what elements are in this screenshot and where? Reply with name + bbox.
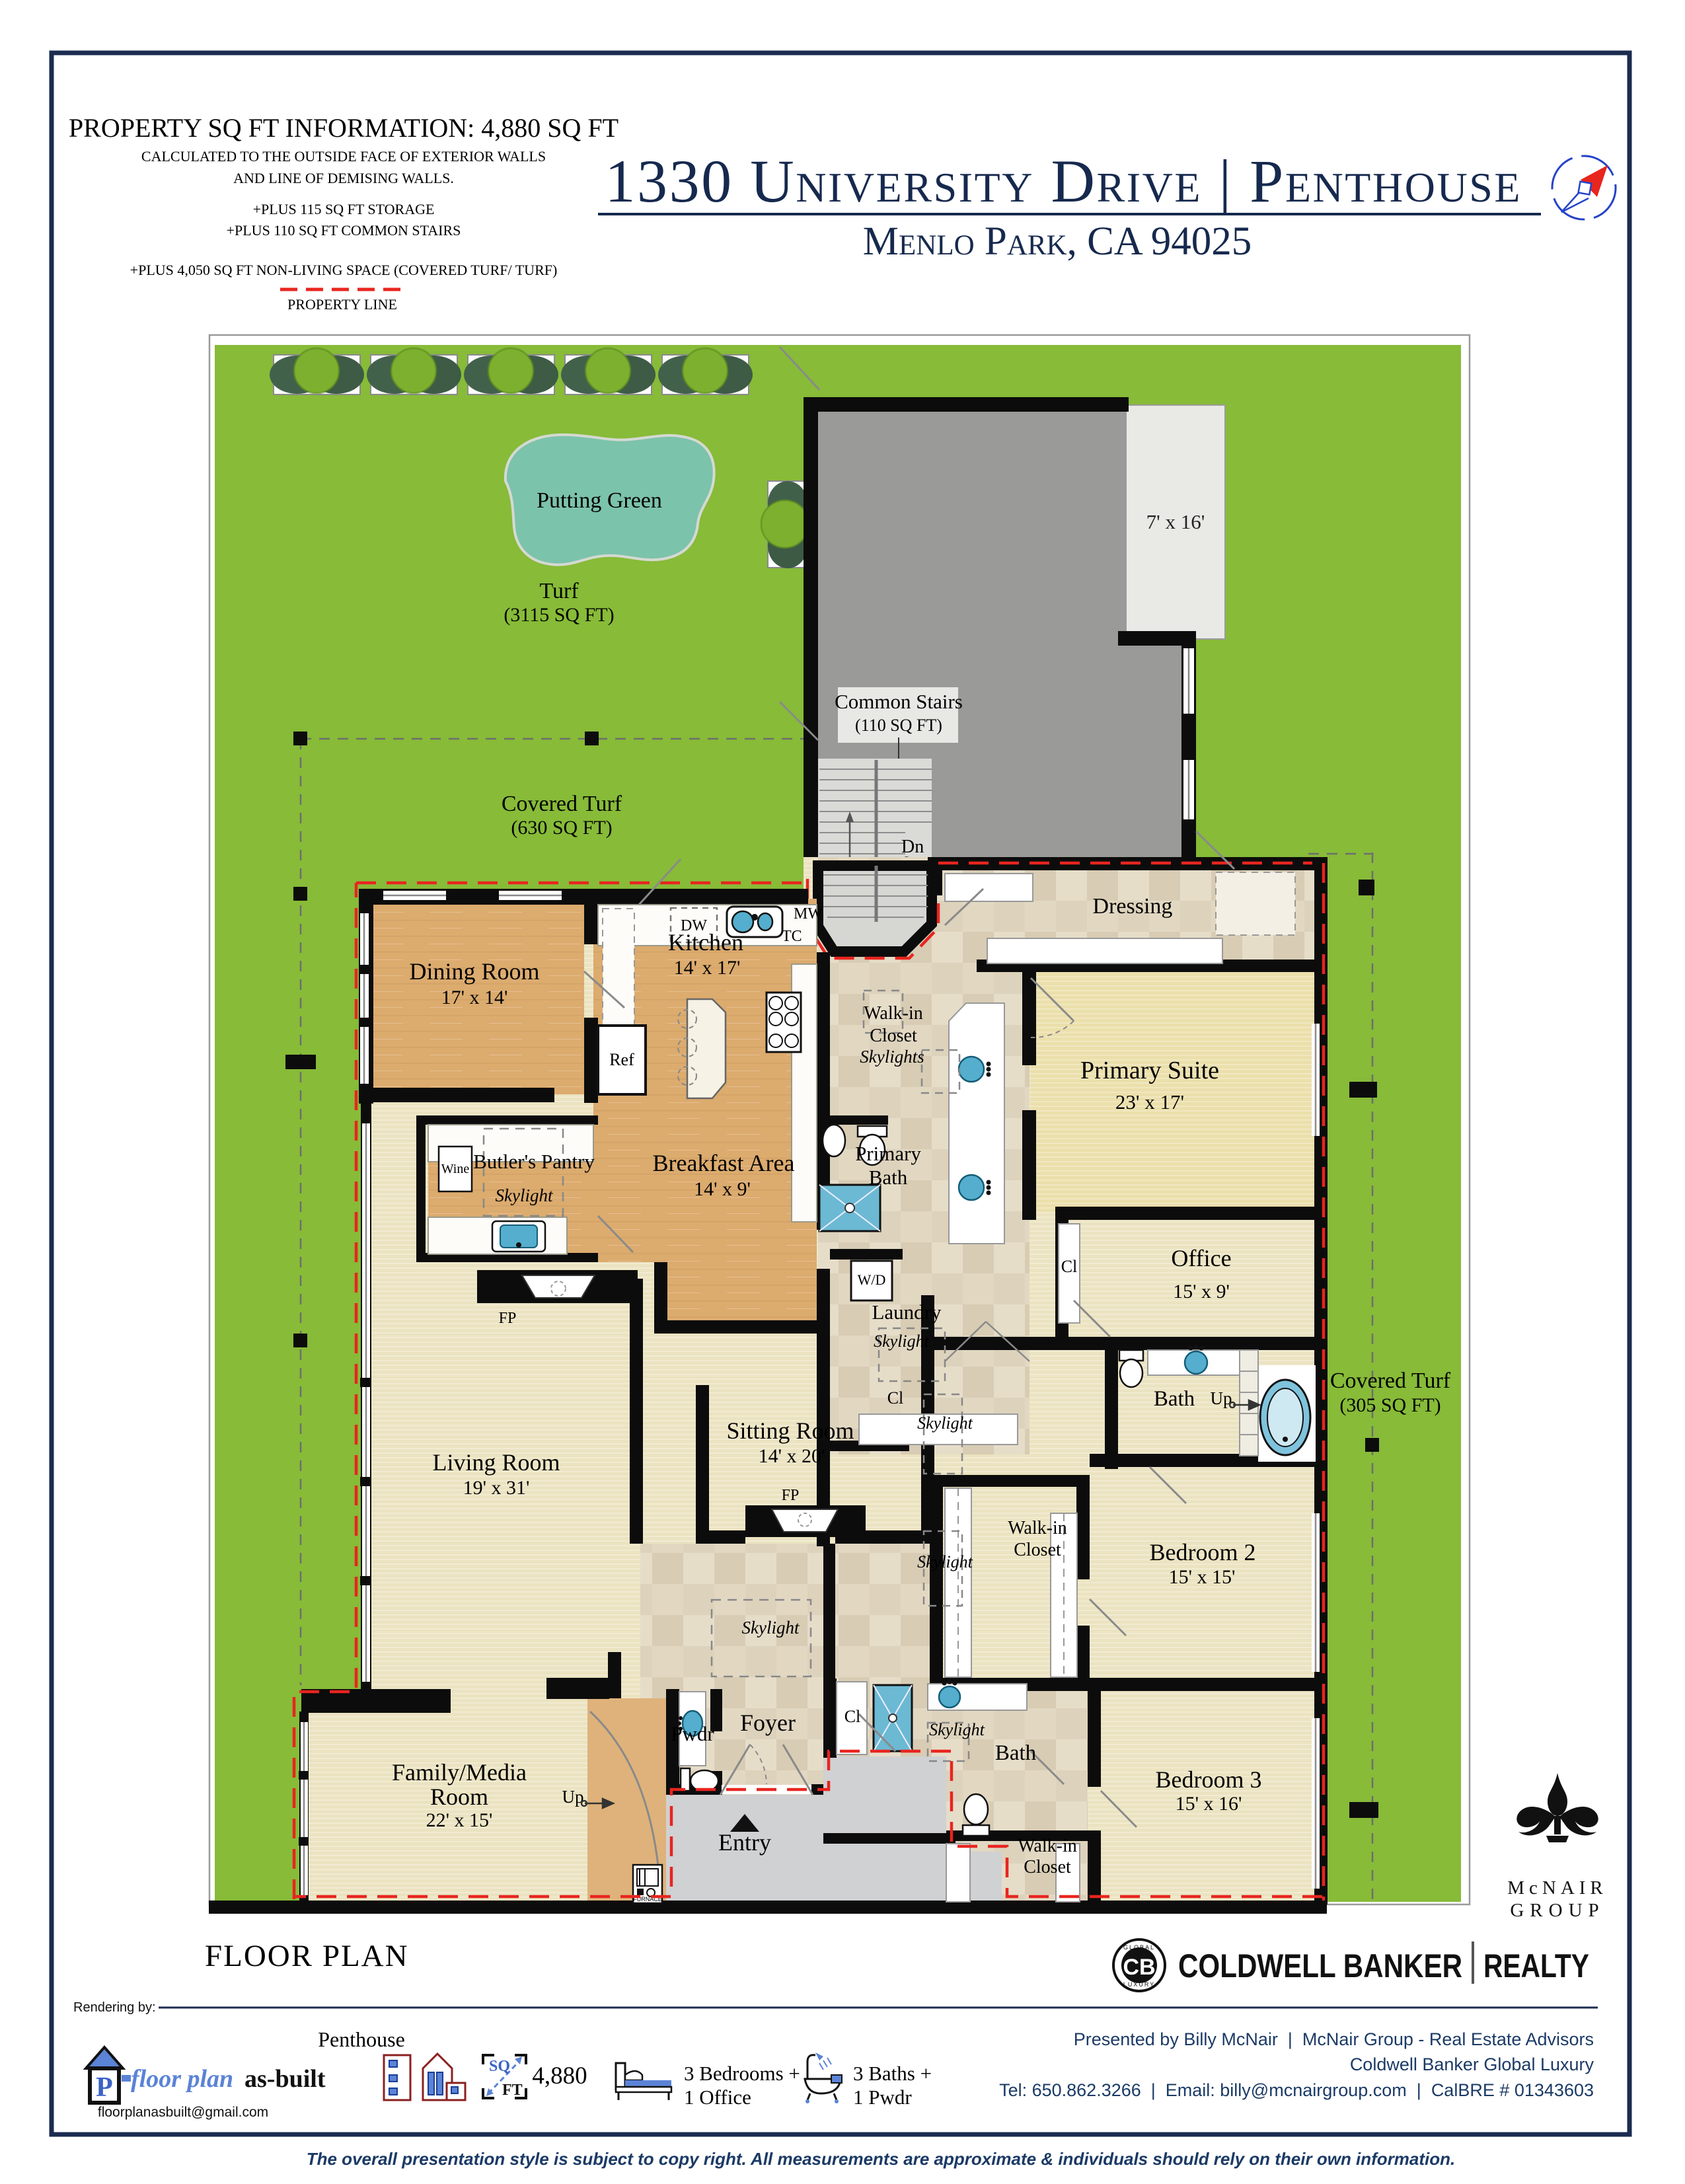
svg-text:Walk-in: Walk-in: [1018, 1836, 1077, 1856]
svg-text:Breakfast Area: Breakfast Area: [653, 1150, 795, 1176]
svg-text:Skylights: Skylights: [860, 1047, 924, 1067]
svg-text:Common Stairs: Common Stairs: [835, 690, 963, 713]
svg-text:Covered Turf: Covered Turf: [502, 792, 622, 816]
svg-text:3 Bedrooms +: 3 Bedrooms +: [684, 2062, 800, 2085]
svg-text:Cl: Cl: [844, 1707, 861, 1726]
svg-text:GROUP: GROUP: [1510, 1900, 1604, 1921]
svg-text:17' x 14': 17' x 14': [441, 987, 508, 1008]
svg-text:floor plan: floor plan: [131, 2065, 233, 2093]
svg-text:Foyer: Foyer: [740, 1710, 796, 1736]
svg-text:Skylight: Skylight: [917, 1552, 973, 1571]
svg-text:Office: Office: [1171, 1245, 1231, 1271]
svg-text:Walk-in: Walk-in: [864, 1003, 923, 1024]
svg-text:1 Pwdr: 1 Pwdr: [853, 2086, 912, 2109]
svg-text:Kitchen: Kitchen: [668, 929, 743, 956]
svg-text:Laundry: Laundry: [872, 1300, 942, 1324]
svg-text:Tel: 650.862.3266 | Email: b: Tel: 650.862.3266 | Email: billy@mcnairg…: [999, 2080, 1594, 2100]
svg-text:Penthouse: Penthouse: [318, 2027, 405, 2051]
svg-text:Primary Suite: Primary Suite: [1080, 1057, 1219, 1084]
svg-text:Sitting Room: Sitting Room: [726, 1417, 854, 1444]
svg-text:Pwdr: Pwdr: [671, 1722, 714, 1745]
svg-text:Rendering by:: Rendering by:: [73, 2000, 156, 2015]
svg-text:Skylight: Skylight: [917, 1413, 973, 1433]
svg-text:PROPERTY SQ FT INFORMATION: 4,: PROPERTY SQ FT INFORMATION: 4,880 SQ FT: [69, 113, 618, 143]
svg-text:PROPERTY LINE: PROPERTY LINE: [287, 296, 397, 313]
svg-text:7' x 16': 7' x 16': [1146, 510, 1205, 533]
svg-text:15' x 9': 15' x 9': [1173, 1281, 1230, 1302]
svg-text:Room: Room: [430, 1784, 488, 1810]
svg-text:Dn: Dn: [901, 837, 924, 857]
svg-text:4,880: 4,880: [532, 2062, 587, 2090]
svg-text:AND LINE OF DEMISING WALLS.: AND LINE OF DEMISING WALLS.: [233, 170, 454, 186]
svg-text:Skylight: Skylight: [742, 1618, 800, 1638]
svg-text:14' x 20': 14' x 20': [759, 1445, 825, 1467]
svg-text:Turf: Turf: [539, 579, 579, 603]
svg-text:Cl: Cl: [887, 1388, 904, 1408]
svg-text:+PLUS 115 SQ FT STORAGE: +PLUS 115 SQ FT STORAGE: [253, 201, 435, 217]
svg-text:TC: TC: [782, 928, 802, 945]
svg-text:(3115 SQ FT): (3115 SQ FT): [504, 604, 614, 626]
svg-text:CALCULATED TO THE OUTSIDE FACE: CALCULATED TO THE OUTSIDE FACE OF EXTERI…: [141, 148, 546, 165]
svg-text:(630 SQ FT): (630 SQ FT): [511, 817, 612, 839]
svg-text:Ref: Ref: [609, 1050, 634, 1069]
svg-text:Bedroom 3: Bedroom 3: [1156, 1766, 1262, 1793]
svg-text:CB: CB: [1123, 1955, 1155, 1980]
svg-text:Primary: Primary: [855, 1142, 921, 1165]
svg-text:Dressing: Dressing: [1093, 894, 1173, 919]
svg-text:15' x 15': 15' x 15': [1169, 1566, 1236, 1588]
svg-text:Closet: Closet: [1024, 1857, 1071, 1877]
svg-text:Covered Turf: Covered Turf: [1330, 1369, 1451, 1393]
svg-text:Coldwell Banker Global Luxury: Coldwell Banker Global Luxury: [1350, 2054, 1594, 2074]
svg-text:22' x 15': 22' x 15': [426, 1809, 493, 1831]
svg-text:Skylight: Skylight: [874, 1332, 930, 1351]
svg-text:1330 University Drive | Pentho: 1330 University Drive | Penthouse: [605, 147, 1520, 215]
svg-text:14' x 9': 14' x 9': [694, 1178, 751, 1200]
svg-text:23' x 17': 23' x 17': [1115, 1090, 1184, 1113]
svg-text:Skylight: Skylight: [496, 1186, 554, 1205]
svg-text:FT: FT: [502, 2082, 523, 2099]
svg-text:as-built: as-built: [244, 2065, 326, 2093]
svg-text:Bath: Bath: [1154, 1387, 1195, 1411]
svg-text:Closet: Closet: [870, 1026, 917, 1046]
svg-text:Putting Green: Putting Green: [537, 488, 662, 513]
svg-text:Entry: Entry: [718, 1829, 771, 1856]
svg-text:LUXURY: LUXURY: [1123, 1981, 1155, 1988]
svg-text:Closet: Closet: [1014, 1540, 1061, 1560]
svg-text:Bedroom 2: Bedroom 2: [1150, 1539, 1256, 1565]
svg-text:+PLUS 110 SQ FT COMMON STAIRS: +PLUS 110 SQ FT COMMON STAIRS: [227, 222, 461, 239]
svg-text:Family/Media: Family/Media: [392, 1759, 527, 1786]
svg-text:19' x 31': 19' x 31': [463, 1477, 530, 1499]
svg-text:FLOOR PLAN: FLOOR PLAN: [205, 1939, 409, 1973]
svg-text:Walk-in: Walk-in: [1008, 1518, 1067, 1538]
svg-text:Menlo Park, CA 94025: Menlo Park, CA 94025: [863, 219, 1252, 264]
svg-text:Presented by Billy McNair |: Presented by Billy McNair | McNair Group…: [1074, 2029, 1594, 2049]
svg-text:+PLUS 4,050 SQ FT NON-LIVING S: +PLUS 4,050 SQ FT NON-LIVING SPACE (COVE…: [130, 262, 558, 278]
svg-text:(110 SQ FT): (110 SQ FT): [855, 716, 942, 735]
svg-text:Bath: Bath: [869, 1166, 908, 1189]
svg-text:GLOBAL: GLOBAL: [1123, 1944, 1155, 1951]
svg-text:W/D: W/D: [858, 1271, 886, 1288]
svg-text:Living Room: Living Room: [432, 1449, 560, 1476]
svg-text:Bath: Bath: [995, 1741, 1037, 1765]
svg-text:15' x 16': 15' x 16': [1176, 1793, 1242, 1815]
svg-text:Cl: Cl: [1061, 1257, 1078, 1276]
svg-text:14' x 17': 14' x 17': [674, 957, 741, 979]
svg-text:Skylight: Skylight: [929, 1720, 985, 1739]
svg-text:McNAIR: McNAIR: [1507, 1877, 1608, 1899]
svg-text:MW: MW: [794, 905, 823, 923]
svg-text:Wine: Wine: [441, 1162, 470, 1176]
svg-text:1 Office: 1 Office: [684, 2086, 751, 2109]
svg-text:Up: Up: [1211, 1388, 1232, 1408]
svg-text:Butler's Pantry: Butler's Pantry: [473, 1150, 595, 1173]
svg-text:SQ: SQ: [489, 2058, 510, 2075]
svg-text:(305 SQ FT): (305 SQ FT): [1339, 1394, 1441, 1416]
svg-text:FP: FP: [499, 1310, 517, 1327]
svg-text:floorplanasbuilt@gmail.com: floorplanasbuilt@gmail.com: [98, 2105, 268, 2120]
svg-text:Dining Room: Dining Room: [409, 958, 539, 985]
svg-text:COLDWELL BANKER: COLDWELL BANKER: [1178, 1947, 1462, 1984]
svg-text:P: P: [96, 2072, 113, 2103]
svg-text:The overall presentation style: The overall presentation style is subjec…: [307, 2149, 1456, 2169]
svg-text:REALTY: REALTY: [1483, 1947, 1589, 1984]
svg-text:Up: Up: [562, 1787, 584, 1807]
svg-text:FP: FP: [782, 1487, 800, 1504]
svg-text:3 Baths +: 3 Baths +: [853, 2062, 932, 2085]
